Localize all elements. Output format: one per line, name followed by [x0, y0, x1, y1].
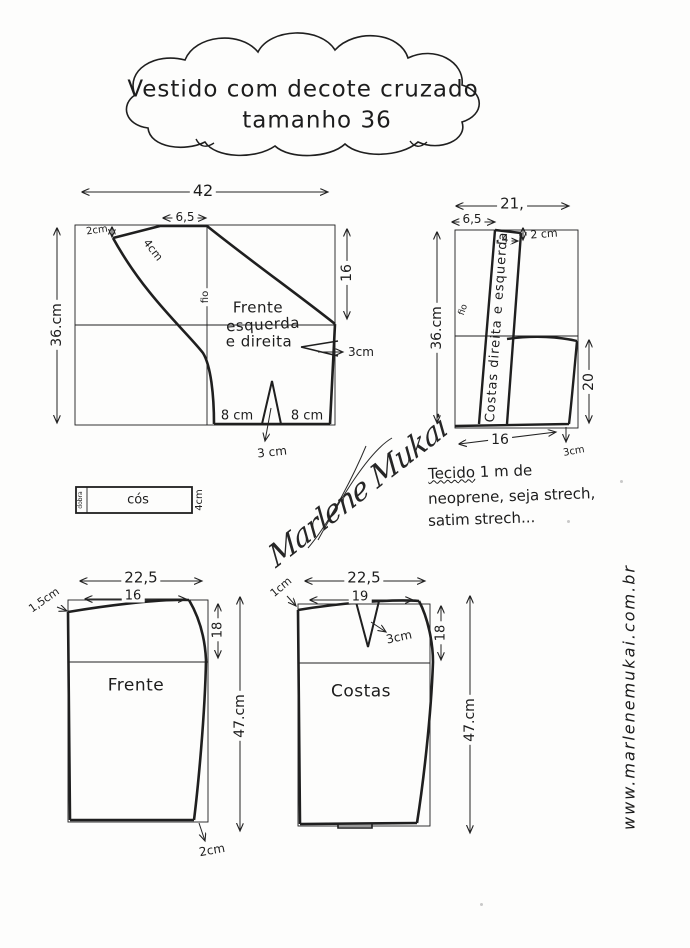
dim-bodice-front-top-width: 6,5	[172, 211, 197, 223]
dim-bodice-back-width: 21,	[497, 197, 527, 212]
dim-bodice-back-side: 20	[582, 370, 596, 394]
fabric-note-line1: Tecido 1 m de	[428, 461, 533, 483]
dim-bodice-front-hem-left: 8 cm	[221, 410, 253, 423]
skirt-back-pattern	[287, 581, 470, 833]
page-title-line2: tamanho 36	[242, 110, 391, 133]
dim-bodice-front-hem-right: 8 cm	[291, 410, 323, 423]
dim-skirt-back-side: 18	[435, 622, 448, 645]
website-url: www.marlenemukai.com.br	[620, 564, 639, 830]
dim-bodice-back-height: 36.cm	[430, 303, 444, 353]
bodice-front-name-line3: e direita	[226, 335, 293, 350]
dim-bodice-front-bottom-dart: 3 cm	[257, 444, 288, 459]
scan-speck	[620, 480, 623, 483]
dim-skirt-back-top-width: 19	[349, 591, 372, 604]
pattern-sheet: Vestido com decote cruzado tamanho 36 42…	[0, 0, 690, 948]
bodice-back-pattern	[437, 206, 589, 444]
dim-bodice-front-side-dart: 3cm	[348, 346, 374, 358]
dim-bodice-front-side: 16	[340, 261, 354, 285]
fabric-note-line1-rest: 1 m de	[475, 461, 533, 481]
scan-speck	[480, 903, 483, 906]
dim-bodice-front-height: 36.cm	[50, 300, 64, 350]
waistband-label: cós	[127, 494, 149, 507]
waistband-fold-label: dobra	[78, 491, 84, 508]
dim-skirt-back-width: 22,5	[344, 571, 383, 586]
scan-speck	[567, 520, 570, 523]
dim-bodice-back-top-width: 6,5	[459, 213, 484, 225]
skirt-back-name: Costas	[331, 684, 391, 701]
dim-skirt-front-height: 47.cm	[233, 691, 247, 741]
fabric-note-line3: satim strech...	[428, 508, 536, 530]
dim-skirt-front-top-width: 16	[122, 590, 145, 603]
skirt-front-name: Frente	[108, 678, 165, 695]
dim-skirt-front-width: 22,5	[121, 571, 160, 586]
bodice-front-name-line1: Frente	[233, 301, 283, 316]
page-title-line1: Vestido com decote cruzado	[127, 79, 478, 102]
dim-bodice-back-strap-offset: 2 cm	[530, 228, 558, 241]
pattern-linework	[0, 0, 690, 948]
fabric-note-keyword: Tecido	[428, 463, 476, 483]
dim-bodice-front-width: 42	[190, 183, 216, 199]
dim-bodice-back-bottom: 16	[488, 433, 512, 447]
dim-skirt-back-height: 47.cm	[463, 695, 477, 745]
dim-skirt-front-side: 18	[212, 619, 225, 642]
grainline-label-bodice-front: fio	[201, 288, 211, 306]
dim-waistband-height: 4cm	[195, 489, 205, 511]
